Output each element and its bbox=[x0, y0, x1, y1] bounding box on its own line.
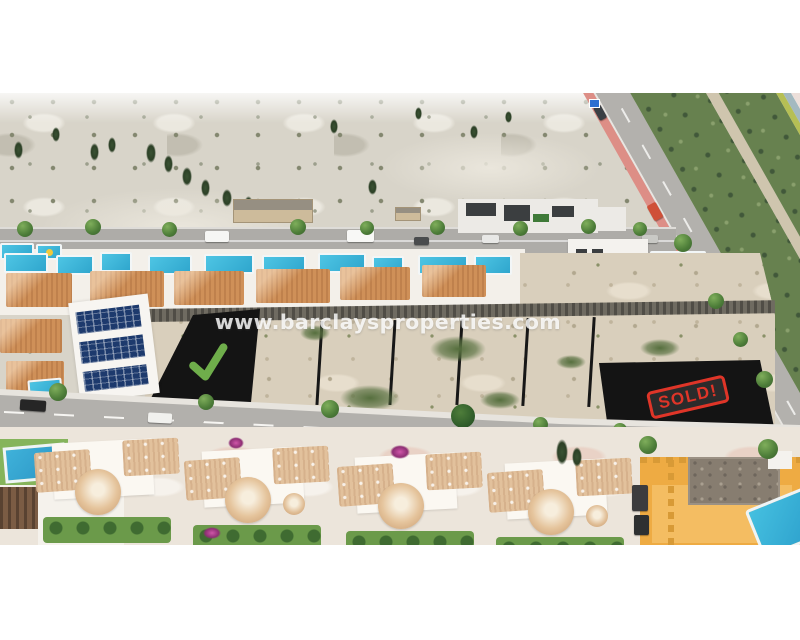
bougainvillea-bush bbox=[390, 445, 410, 459]
dark-roof-section bbox=[466, 203, 496, 216]
page: www.barclaysproperties.com SOLD! bbox=[0, 0, 800, 640]
solar-roof-building bbox=[68, 293, 160, 402]
tall-tree bbox=[572, 447, 582, 467]
street-tree bbox=[85, 219, 101, 235]
garden bbox=[43, 517, 171, 543]
cypress-tree bbox=[164, 155, 173, 173]
white-car bbox=[148, 412, 172, 423]
white-van bbox=[205, 231, 229, 242]
villa-roof bbox=[272, 446, 330, 485]
watermark: www.barclaysproperties.com bbox=[215, 310, 561, 334]
garden bbox=[346, 531, 474, 545]
street-tree bbox=[430, 220, 445, 235]
street-tree bbox=[633, 222, 647, 236]
solar-panels bbox=[75, 305, 141, 335]
bougainvillea-bush bbox=[203, 527, 221, 539]
cypress-tree bbox=[90, 143, 99, 161]
swimming-pool bbox=[4, 253, 48, 273]
cypress-tree bbox=[368, 179, 377, 195]
villa-roof bbox=[0, 319, 62, 353]
modern-villa bbox=[598, 207, 626, 231]
street-tree bbox=[49, 383, 67, 401]
roadside-tree bbox=[733, 332, 748, 347]
street-tree bbox=[290, 219, 306, 235]
turret-roof bbox=[225, 477, 271, 523]
solar-panels bbox=[83, 364, 149, 392]
aerial-photo: www.barclaysproperties.com SOLD! bbox=[0, 93, 800, 545]
solar-panels bbox=[79, 334, 145, 364]
turret-roof bbox=[75, 469, 121, 515]
turret-roof bbox=[378, 483, 424, 529]
dark-car bbox=[414, 237, 429, 245]
swimming-pool bbox=[100, 252, 132, 272]
shed-roof bbox=[396, 208, 420, 213]
street-tree bbox=[581, 219, 596, 234]
garden bbox=[496, 537, 624, 545]
scrub-patch bbox=[556, 355, 586, 369]
street-tree bbox=[17, 221, 33, 237]
crenellated-wall bbox=[668, 457, 674, 545]
villa-roof bbox=[174, 271, 244, 305]
villa-roof bbox=[575, 458, 633, 497]
modern-villas-block bbox=[458, 199, 598, 233]
cypress-tree bbox=[222, 189, 232, 207]
orange-villa-roof bbox=[688, 457, 780, 505]
black-car bbox=[20, 399, 47, 412]
swimming-pool bbox=[56, 255, 94, 275]
road-sign bbox=[589, 99, 600, 108]
street-tree bbox=[198, 394, 214, 410]
bougainvillea-bush bbox=[228, 437, 244, 449]
turret-roof-small bbox=[283, 493, 305, 515]
scrub-patch bbox=[640, 339, 680, 357]
turret-roof-small bbox=[586, 505, 608, 527]
palm-tree bbox=[451, 404, 475, 428]
villa-roof bbox=[256, 269, 330, 303]
cypress-tree bbox=[108, 137, 116, 153]
cypress-tree bbox=[14, 141, 23, 159]
cypress-tree bbox=[52, 127, 60, 142]
scrub-patch bbox=[430, 336, 486, 362]
turret-villa bbox=[488, 455, 638, 545]
dark-roof-section bbox=[504, 205, 530, 221]
cypress-tree bbox=[505, 111, 512, 123]
parked-car bbox=[632, 485, 648, 511]
scrub-patch bbox=[480, 391, 520, 409]
cypress-tree bbox=[415, 107, 422, 120]
scrub-clearing bbox=[380, 133, 600, 203]
roadside-tree bbox=[674, 234, 692, 252]
villa-roof bbox=[422, 265, 486, 297]
green-checkmark-icon bbox=[186, 342, 232, 384]
street-tree bbox=[758, 439, 778, 459]
turret-roof bbox=[528, 489, 574, 535]
street-tree bbox=[360, 221, 374, 235]
roadside-tree bbox=[756, 371, 773, 388]
turret-villa bbox=[35, 435, 185, 545]
pergola bbox=[0, 487, 38, 529]
lawn-patch bbox=[533, 214, 549, 222]
cypress-tree bbox=[182, 167, 192, 186]
street-tree bbox=[321, 400, 339, 418]
cypress-tree bbox=[330, 119, 338, 134]
villa-roof bbox=[122, 438, 180, 477]
street-tree bbox=[162, 222, 177, 237]
dark-roof-section bbox=[552, 206, 574, 217]
cypress-tree bbox=[201, 179, 210, 197]
villa-roof bbox=[340, 267, 410, 300]
cypress-tree bbox=[470, 125, 478, 139]
rural-shed bbox=[395, 207, 421, 221]
building-roof bbox=[234, 200, 312, 210]
turret-villa bbox=[338, 449, 488, 545]
tall-tree bbox=[556, 439, 568, 465]
villa-roof bbox=[425, 452, 483, 491]
street-tree bbox=[639, 436, 657, 454]
cypress-tree bbox=[146, 143, 156, 163]
villa-roof bbox=[6, 273, 72, 307]
parked-car bbox=[634, 515, 649, 535]
roadside-tree bbox=[708, 293, 724, 309]
white-car bbox=[482, 235, 499, 243]
street-tree bbox=[513, 221, 528, 236]
